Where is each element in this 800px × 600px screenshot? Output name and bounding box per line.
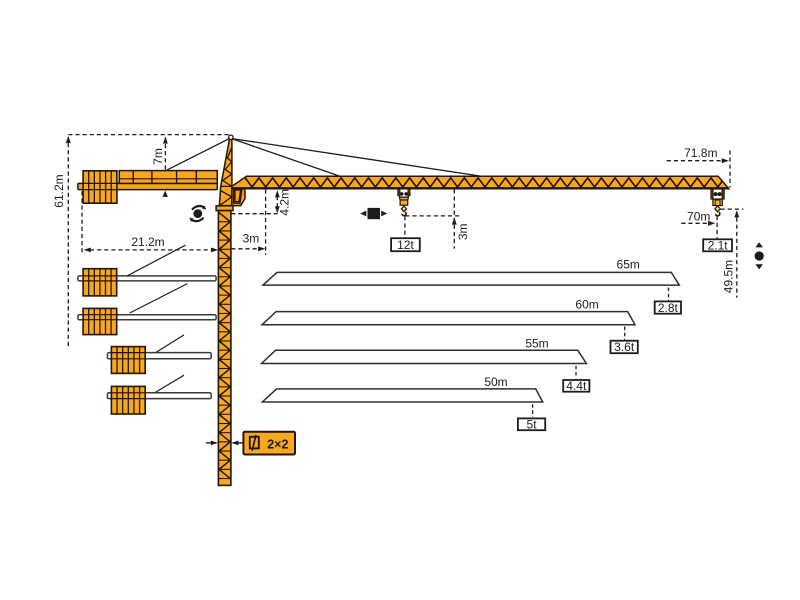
svg-text:65m: 65m bbox=[617, 258, 640, 272]
svg-text:61.2m: 61.2m bbox=[52, 174, 66, 207]
svg-text:55m: 55m bbox=[525, 336, 548, 350]
svg-text:7m: 7m bbox=[151, 148, 165, 165]
svg-text:70m: 70m bbox=[687, 209, 710, 223]
svg-text:5t: 5t bbox=[527, 418, 538, 432]
svg-text:3m: 3m bbox=[456, 223, 470, 240]
svg-text:12t: 12t bbox=[397, 238, 414, 252]
svg-text:50m: 50m bbox=[484, 375, 507, 389]
svg-text:21.2m: 21.2m bbox=[131, 235, 164, 249]
svg-text:3m: 3m bbox=[243, 231, 260, 245]
svg-text:2.8t: 2.8t bbox=[658, 301, 679, 315]
svg-text:4.4t: 4.4t bbox=[566, 379, 587, 393]
svg-text:3.6t: 3.6t bbox=[614, 340, 635, 354]
svg-text:71.8m: 71.8m bbox=[684, 146, 717, 160]
svg-text:49.5m: 49.5m bbox=[722, 260, 736, 293]
svg-text:60m: 60m bbox=[575, 298, 598, 312]
svg-text:2.1t: 2.1t bbox=[708, 239, 729, 253]
svg-text:2×2: 2×2 bbox=[267, 437, 288, 451]
svg-text:4.2m: 4.2m bbox=[278, 189, 292, 216]
